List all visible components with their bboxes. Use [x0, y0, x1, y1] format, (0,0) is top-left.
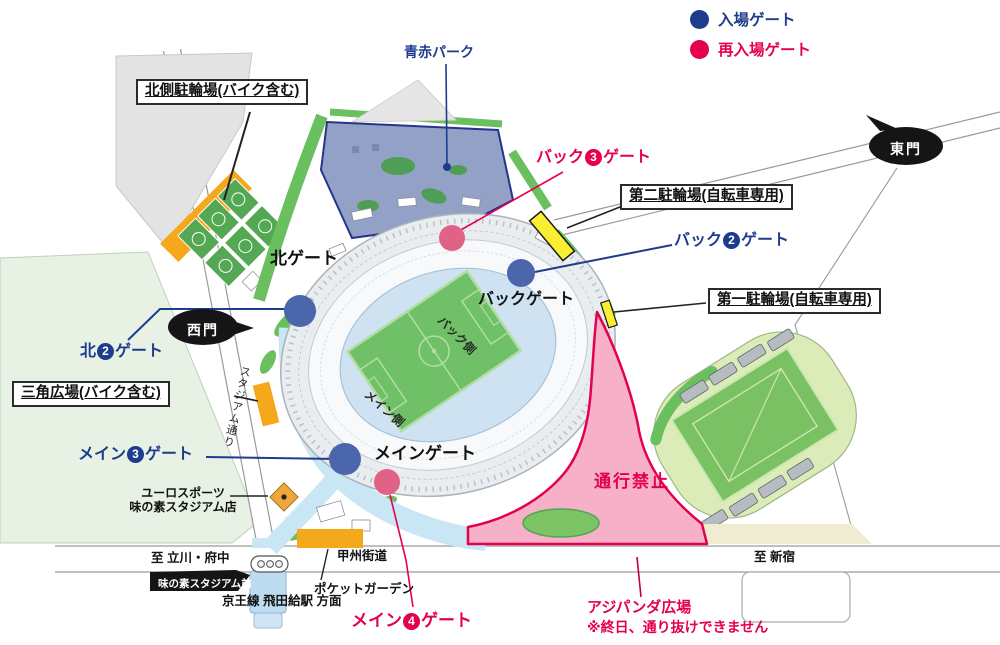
label-main4-gate: メイン4ゲート: [351, 611, 472, 631]
box-triangle-plaza: 三角広場(バイク含む): [12, 381, 170, 407]
main4-gate-marker: [374, 469, 400, 495]
box-north-parking: 北側駐輪場(バイク含む): [136, 79, 308, 105]
label-back2-gate: バック2ゲート: [674, 232, 789, 250]
entry-gate-dot-icon: [690, 10, 709, 29]
main-gate-marker: [329, 443, 361, 475]
label-euro-sports: ユーロスポーツ 味の素スタジアム店: [118, 487, 248, 515]
euro-sports-marker: [270, 483, 298, 511]
legend-reentry-label: 再入場ゲート: [718, 38, 811, 60]
label-north2-gate: 北2ゲート: [80, 343, 163, 361]
stadium-map: 入場ゲート 再入場ゲート 青赤パーク 北側駐輪場(バイク含む) 第二駐輪場(自転…: [0, 0, 1000, 645]
label-aoaka-park: 青赤パーク: [404, 44, 474, 60]
box-first-bicycle-parking: 第一駐輪場(自転車専用): [708, 288, 881, 314]
circled-3: 3: [127, 446, 144, 463]
label-no-passage: 通行禁止: [594, 472, 670, 492]
legend-reentry-gate: 再入場ゲート: [690, 38, 811, 60]
triangle-plaza-marker: [253, 382, 280, 427]
label-back3-gate: バック3ゲート: [536, 149, 651, 167]
circled-3: 3: [585, 149, 602, 166]
label-back-gate: バックゲート: [478, 291, 574, 309]
legend-entry-gate: 入場ゲート: [690, 8, 796, 30]
pocket-garden-marker: [297, 529, 363, 548]
legend-entry-label: 入場ゲート: [718, 8, 796, 30]
label-to-shinjuku: 至 新宿: [754, 550, 795, 564]
circled-4: 4: [403, 613, 420, 630]
reentry-gate-dot-icon: [690, 40, 709, 59]
label-main-gate: メインゲート: [374, 444, 476, 464]
label-west-gate: 西門: [177, 320, 229, 340]
crossing-icon: [251, 556, 288, 572]
circled-2: 2: [97, 343, 114, 360]
north-gate-marker: [284, 295, 316, 327]
label-to-tachikawa: 至 立川・府中: [151, 551, 229, 565]
label-ajipanda-note: ※終日、通り抜けできません: [587, 619, 768, 635]
box-second-bicycle-parking: 第二駐輪場(自転車専用): [620, 184, 793, 210]
label-main3-gate: メイン3ゲート: [78, 446, 193, 464]
back-gate-marker: [507, 259, 535, 287]
label-pocket-garden: ポケットガーデン: [314, 582, 414, 596]
label-station-stop: 味の素スタジアム前: [158, 576, 252, 591]
back3-gate-marker: [439, 225, 465, 251]
label-koshu-kaido: 甲州街道: [337, 549, 387, 563]
label-east-gate: 東門: [880, 139, 932, 159]
southeast-building: [742, 572, 850, 622]
circled-2: 2: [723, 232, 740, 249]
label-north-gate: 北ゲート: [270, 249, 338, 269]
label-ajipanda-plaza: アジパンダ広場: [587, 599, 691, 616]
